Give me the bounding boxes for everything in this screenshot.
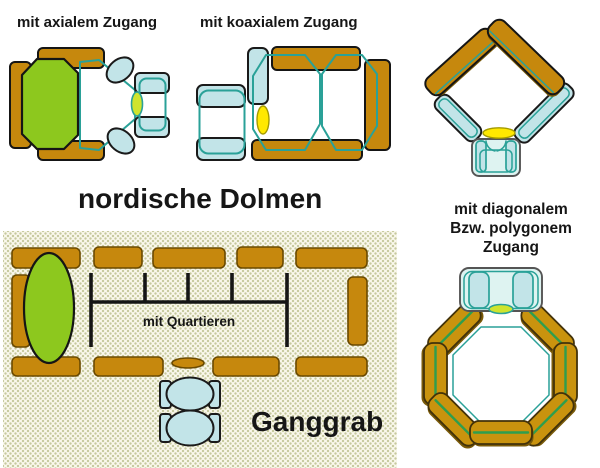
diagonal-entrance-stone-right bbox=[506, 141, 516, 172]
diagonal-capstone-right bbox=[483, 16, 568, 100]
diagonal-caption-line-3: Zugang bbox=[425, 238, 597, 257]
polygon-entrance-stone-left bbox=[469, 272, 489, 308]
koaxial-top-stone bbox=[272, 47, 360, 70]
ganggrab-bottom-stone-4 bbox=[296, 357, 367, 376]
koaxial-threshold-marker bbox=[257, 106, 269, 134]
polygon-entrance-stone-right bbox=[513, 272, 533, 308]
ganggrab-top-stone-5 bbox=[296, 248, 367, 268]
dolmen-axial-diagram bbox=[10, 48, 169, 160]
axial-threshold-marker bbox=[132, 92, 143, 116]
diagonal-caption-line-2: Bzw. polygonem bbox=[425, 219, 597, 238]
axial-chamber bbox=[22, 59, 78, 149]
koaxial-passage-stone-upper bbox=[197, 85, 245, 107]
diagonal-caption: mit diagonalem Bzw. polygonem Zugang bbox=[425, 200, 597, 257]
ganggrab-top-stone-4 bbox=[237, 247, 283, 268]
diagonal-caption-line-1: mit diagonalem bbox=[425, 200, 597, 219]
diagonal-entrance-stone-left bbox=[476, 141, 486, 172]
koaxial-passage-stone-lower bbox=[197, 138, 245, 160]
ganggrab-top-stone-3 bbox=[153, 248, 225, 268]
polygon-chamber-outline bbox=[453, 327, 549, 423]
diagonal-side-stone-left bbox=[432, 92, 484, 144]
ganggrab-quarter-dividers bbox=[91, 273, 287, 347]
polygon-stone-bottom bbox=[470, 421, 534, 447]
ganggrab-passage-capstone-1 bbox=[167, 378, 214, 411]
ganggrab-passage-capstone-2 bbox=[167, 411, 214, 446]
figure-canvas: mit axialem Zugang mit koaxialem Zugang … bbox=[0, 0, 600, 468]
quartieren-annotation: mit Quartieren bbox=[91, 314, 287, 329]
dolmen-polygon-diagram bbox=[422, 268, 581, 452]
ganggrab-end-chamber bbox=[24, 253, 74, 363]
ganggrab-end-stone-right bbox=[348, 277, 367, 345]
dolmen-diagonal-diagram bbox=[422, 16, 577, 176]
ganggrab-title: Ganggrab bbox=[251, 407, 383, 437]
diagonal-threshold-marker bbox=[483, 128, 515, 138]
ganggrab-top-stone-2 bbox=[94, 247, 142, 268]
ganggrab-lintel-stone bbox=[172, 358, 204, 368]
axial-caption: mit axialem Zugang bbox=[17, 14, 157, 31]
koaxial-caption: mit koaxialem Zugang bbox=[200, 14, 358, 31]
ganggrab-bottom-stone-2 bbox=[94, 357, 163, 376]
group-title: nordische Dolmen bbox=[78, 184, 322, 214]
dolmen-koaxial-diagram bbox=[197, 47, 390, 160]
ganggrab-bottom-stone-3 bbox=[213, 357, 279, 376]
polygon-threshold-marker bbox=[489, 305, 513, 314]
axial-door-stone-lower bbox=[103, 123, 139, 158]
axial-door-stone-upper bbox=[102, 52, 138, 87]
